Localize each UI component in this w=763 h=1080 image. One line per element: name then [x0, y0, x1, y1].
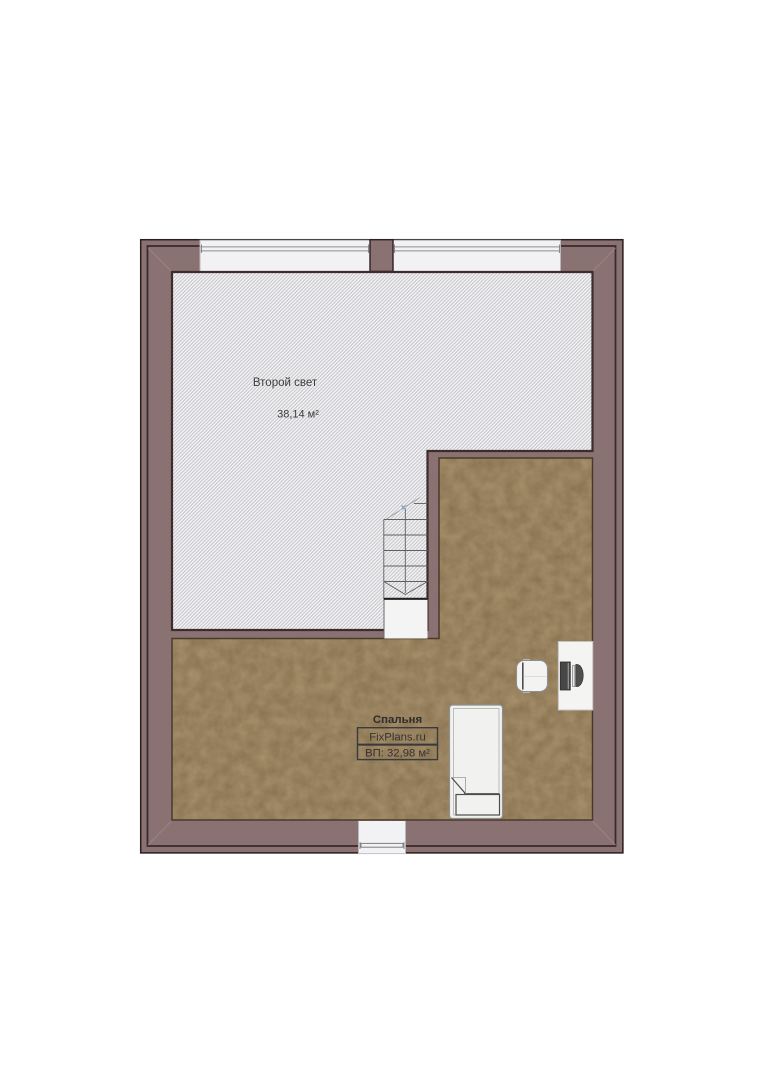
svg-text:FixPlans.ru: FixPlans.ru [369, 731, 426, 743]
svg-text:38,14 м²: 38,14 м² [277, 409, 319, 421]
svg-text:Второй свет: Второй свет [253, 377, 318, 389]
svg-text:Спальня: Спальня [373, 714, 422, 726]
svg-text:ВП: 32,98 м²: ВП: 32,98 м² [365, 748, 430, 760]
